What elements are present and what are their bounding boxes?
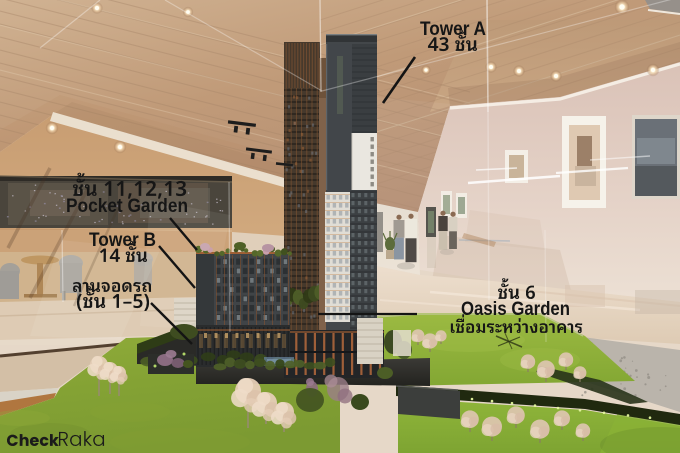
svg-text:Pocket Garden: Pocket Garden xyxy=(66,195,188,217)
svg-text:Oasis Garden: Oasis Garden xyxy=(461,298,570,320)
svg-text:Tower B: Tower B xyxy=(89,229,156,251)
svg-text:Tower A: Tower A xyxy=(420,18,486,40)
